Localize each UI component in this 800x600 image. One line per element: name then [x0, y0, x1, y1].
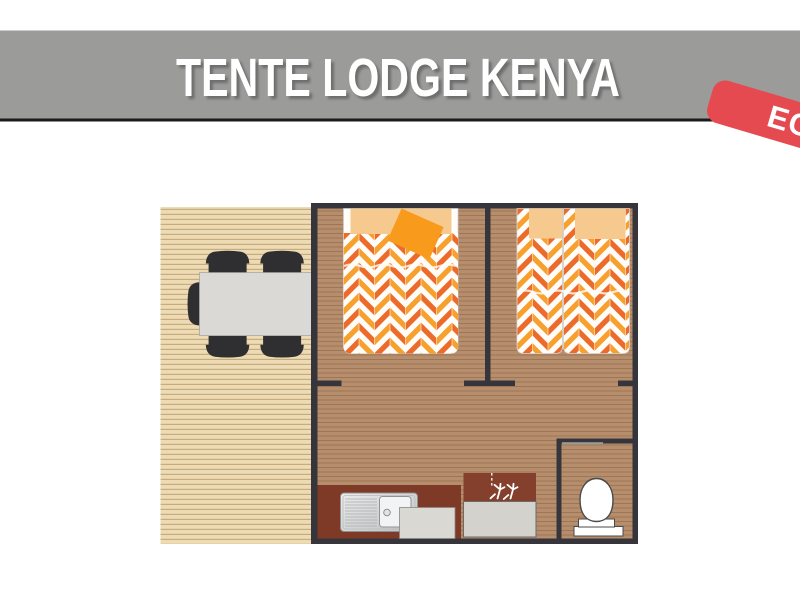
svg-text:TENTE LODGE KENYA: TENTE LODGE KENYA: [176, 48, 620, 108]
